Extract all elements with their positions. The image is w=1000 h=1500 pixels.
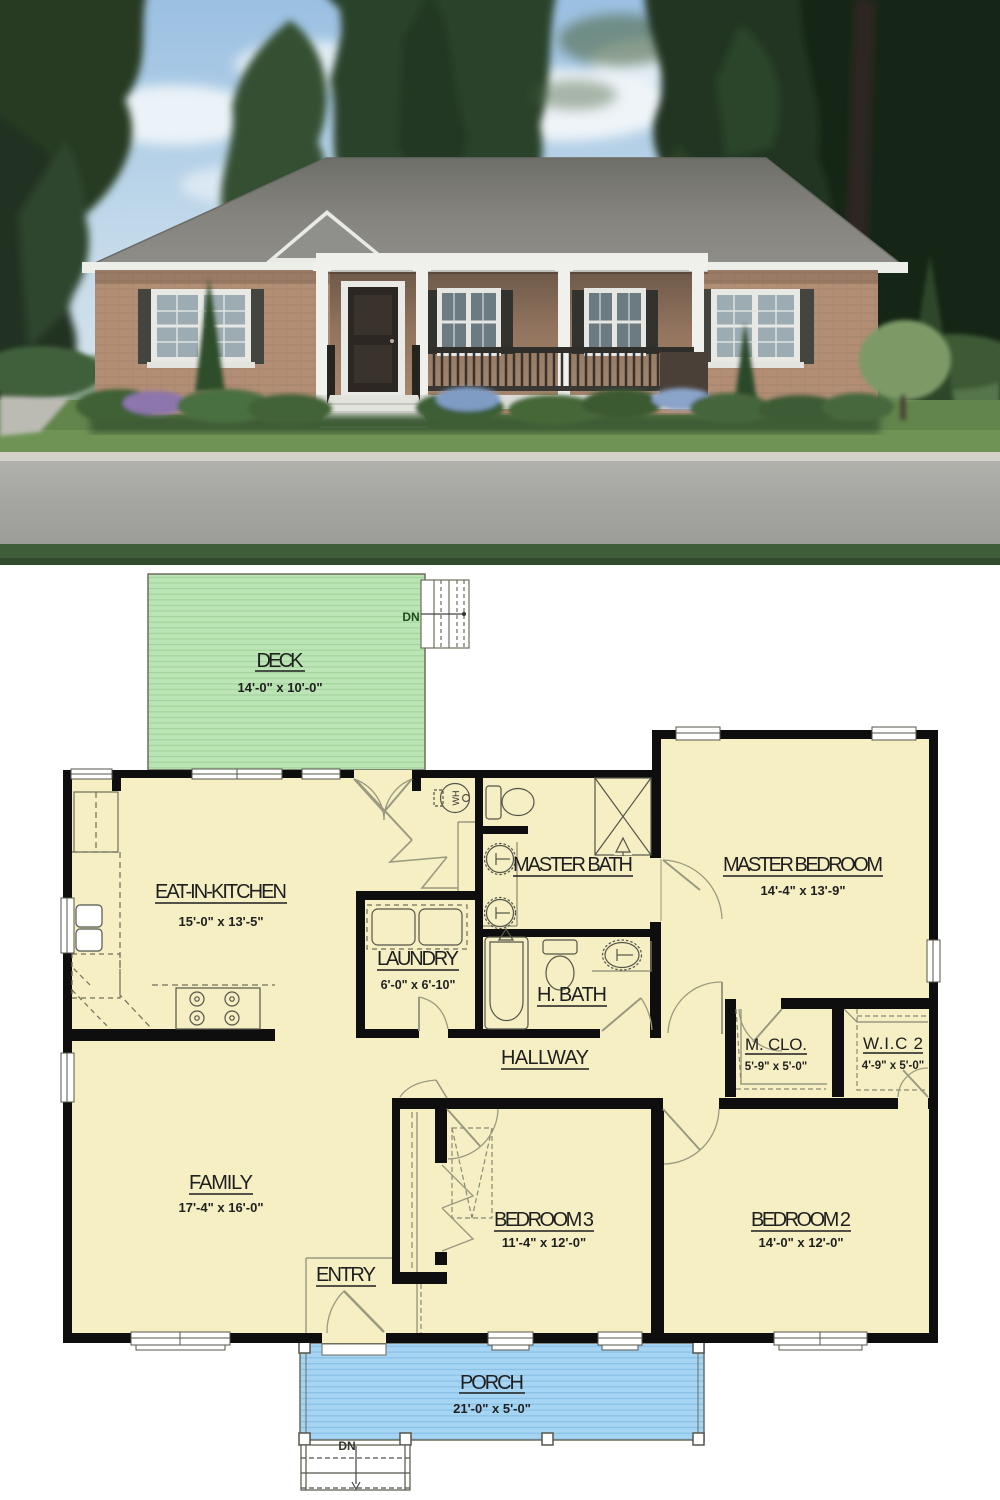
svg-text:4'-9" x 5'-0": 4'-9" x 5'-0" [862, 1060, 924, 1072]
svg-text:DN: DN [402, 610, 419, 624]
svg-text:ENTRY: ENTRY [316, 1264, 376, 1286]
svg-text:FAMILY: FAMILY [189, 1172, 253, 1194]
svg-text:15'-0" x 13'-5": 15'-0" x 13'-5" [178, 914, 263, 929]
svg-text:W.I.C 2: W.I.C 2 [863, 1034, 923, 1053]
svg-text:WH: WH [451, 791, 461, 806]
svg-text:BEDROOM 3: BEDROOM 3 [494, 1209, 594, 1231]
svg-text:14'-0" x 12'-0": 14'-0" x 12'-0" [758, 1235, 843, 1250]
svg-text:17'-4" x 16'-0": 17'-4" x 16'-0" [178, 1200, 263, 1215]
svg-text:LAUNDRY: LAUNDRY [377, 948, 459, 970]
svg-text:11'-4" x 12'-0": 11'-4" x 12'-0" [502, 1235, 586, 1250]
svg-text:14'-0" x 10'-0": 14'-0" x 10'-0" [237, 680, 322, 695]
svg-text:BEDROOM 2: BEDROOM 2 [751, 1209, 851, 1231]
svg-text:MASTER BEDROOM: MASTER BEDROOM [723, 854, 883, 876]
svg-text:M. CLO.: M. CLO. [745, 1035, 807, 1054]
svg-text:21'-0" x 5'-0": 21'-0" x 5'-0" [453, 1401, 531, 1416]
svg-text:5'-9" x 5'-0": 5'-9" x 5'-0" [745, 1061, 807, 1073]
svg-text:EAT-IN-KITCHEN: EAT-IN-KITCHEN [155, 881, 287, 903]
svg-text:H. BATH: H. BATH [537, 984, 607, 1006]
svg-text:PORCH: PORCH [460, 1372, 524, 1394]
svg-text:HALLWAY: HALLWAY [501, 1047, 589, 1069]
svg-text:6'-0" x 6'-10": 6'-0" x 6'-10" [381, 978, 456, 992]
svg-text:DN: DN [338, 1439, 355, 1453]
svg-text:MASTER BATH: MASTER BATH [513, 854, 633, 876]
svg-text:DECK: DECK [257, 650, 305, 672]
svg-text:14'-4" x 13'-9": 14'-4" x 13'-9" [760, 883, 845, 898]
